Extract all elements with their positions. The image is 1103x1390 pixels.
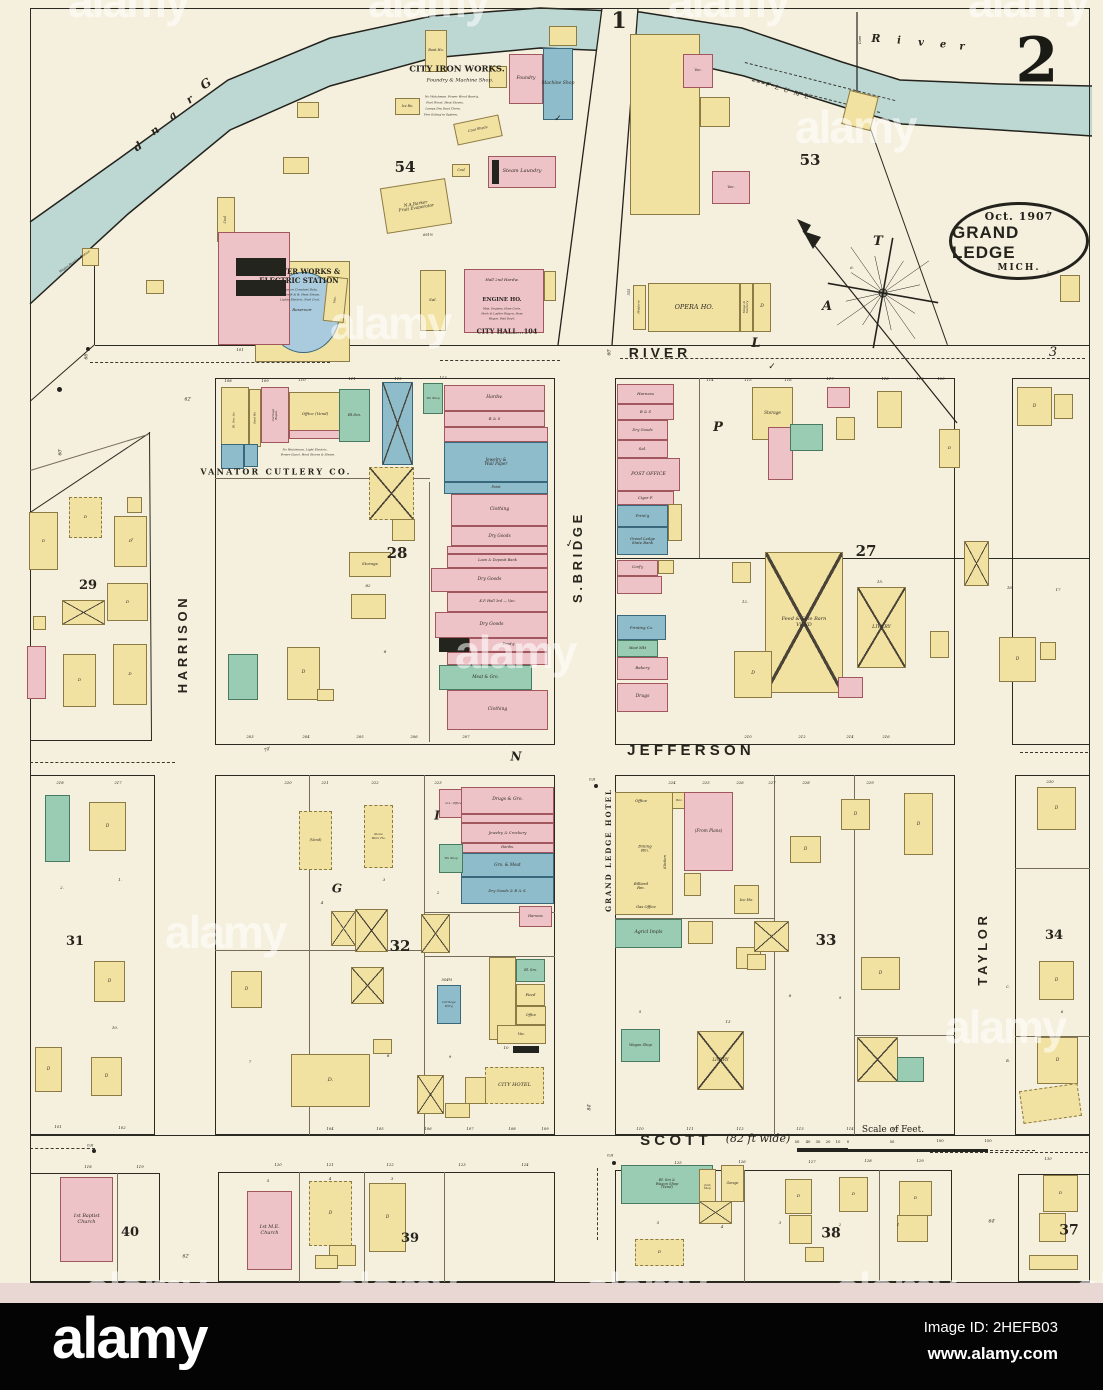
map-label: Fire Exting'rs System. [424, 113, 458, 116]
building [315, 1255, 338, 1269]
building-label: D [84, 515, 87, 519]
building-label: Foundry [517, 77, 536, 82]
map-label: 2 [839, 1223, 842, 1227]
building [617, 576, 662, 594]
sanborn-map-sheet: Boat Ho.Coal ShedsFoundryMachine ShopSte… [0, 0, 1103, 1390]
building-vac: Vac. [683, 54, 713, 88]
map-label: Hook & Ladder Wagon, Hose [481, 312, 522, 315]
building-label: D [105, 1074, 108, 1078]
building-label: Clothing [490, 508, 510, 513]
building-d: D [1037, 1037, 1078, 1084]
building-label: Jewelry & Wall Paper [485, 458, 508, 467]
building-label: Meat Mkt [629, 647, 646, 651]
map-label: Dining Rm. [638, 845, 651, 854]
block-number-32: 32 [390, 938, 411, 954]
building-label: 1st M.E. Church [259, 1225, 279, 1235]
building-dry-goods: Dry Goods [451, 526, 548, 546]
map-label: e [940, 41, 946, 52]
block-number-27: 27 [856, 543, 877, 559]
building-print-g: Print'g [617, 505, 668, 527]
parcel-line [1015, 868, 1090, 869]
building-label: Meat & Gro. [472, 675, 498, 679]
building-label: Carriage Pnt'g [442, 1001, 455, 1007]
map-label: 228 [802, 781, 809, 785]
map-label: 17 [1055, 588, 1060, 592]
building-1st-baptist-church: 1st Baptist Church [60, 1177, 113, 1262]
building-d: D [287, 647, 320, 700]
map-label: 62' [185, 399, 192, 404]
block-number-38: 38 [821, 1226, 840, 1241]
map-label: 203 [246, 735, 253, 739]
building-label: Bac. [676, 799, 683, 802]
building [1040, 642, 1056, 660]
map-label: O.H [589, 778, 595, 781]
building [382, 382, 413, 465]
street-label-river: RIVER [629, 345, 691, 360]
building [57, 387, 62, 392]
building-meat-gro: Meat & Gro. [439, 665, 532, 690]
pipe-or-flume-line [30, 1148, 95, 1149]
building-label: Print'g [636, 514, 650, 518]
map-label: 205 [356, 735, 363, 739]
map-title-state: MICH. [998, 263, 1041, 273]
map-label: 12. [742, 600, 748, 604]
map-label: 7 [249, 1060, 252, 1064]
building-dry-goods: Dry Goods [617, 420, 668, 440]
map-label: Hall 2nd Hardw. [485, 278, 518, 282]
building-label: D [329, 1211, 332, 1215]
pipe-or-flume-line [1020, 752, 1088, 753]
map-label: Bl. Sm. &c [232, 412, 235, 428]
building [754, 921, 789, 952]
parcel-line [744, 1170, 745, 1282]
map-label: 115 [744, 378, 751, 382]
map-label: 121 [326, 1163, 333, 1167]
building-label: 1st Baptist Church [73, 1214, 99, 1224]
map-label: I [434, 810, 440, 823]
building-label: Office (Vend) [302, 412, 328, 416]
building-label: Office [526, 1014, 537, 1018]
parcel-line [30, 1135, 1090, 1136]
map-label: 224 [668, 781, 675, 785]
map-label: 124 [521, 1163, 528, 1167]
building [513, 1046, 539, 1053]
map-label: B. [1006, 1060, 1010, 1064]
building-d: D [1017, 387, 1052, 426]
alamy-url[interactable]: www.alamy.com [924, 1344, 1058, 1364]
building-label: OPERA HO. [675, 304, 714, 311]
building-d: D [89, 802, 126, 851]
building-label: D [386, 1215, 389, 1219]
map-label: Fuel Wood. Heat Stoves. [426, 101, 463, 104]
map-label: 101 [236, 348, 243, 352]
building-agricl-impls: Agricl Impls [615, 919, 682, 948]
building [492, 160, 499, 184]
building-feed-sale-barn-vend: Feed & Sale Barn VEND [765, 552, 843, 693]
parcel-line [615, 558, 1090, 559]
map-label: Seed Ho [253, 412, 256, 424]
map-label: 218 [56, 781, 63, 785]
image-id: Image ID: 2HEFB03 [924, 1319, 1058, 1336]
building-vac: Vac. [712, 171, 750, 204]
building-label: LIVERY [872, 625, 891, 630]
building [373, 1039, 392, 1054]
map-label: 110 [298, 378, 305, 382]
block-number-53: 53 [800, 152, 821, 168]
street-label-s-bridge: S.BRIDGE [571, 511, 585, 603]
building-label: Grand Ledge State Bank [630, 537, 655, 545]
map-label: i [897, 37, 901, 48]
block-number-39: 39 [401, 1232, 419, 1246]
map-label: 4 [721, 1225, 724, 1229]
map-label: 108 [224, 379, 231, 383]
building [33, 616, 46, 630]
building-label: D [302, 671, 306, 676]
building-vac: Vac. [497, 1025, 546, 1044]
map-label: 216 [882, 735, 889, 739]
map-label: 122 [386, 1163, 393, 1167]
map-label: 2. [60, 886, 64, 890]
map-label: 225 [702, 781, 709, 785]
building-label: Vac. [518, 1033, 525, 1037]
street-label-scott: SCOTT [640, 1133, 712, 1149]
building-d: D [69, 497, 102, 538]
map-label: 206 [410, 735, 417, 739]
map-label: 1. [118, 878, 122, 882]
building-label: Harness [637, 392, 654, 396]
pipe-or-flume-line [930, 1152, 1088, 1153]
building-label: Print'g [502, 643, 514, 647]
map-label: 16. [1007, 586, 1013, 590]
building [369, 467, 414, 520]
building-label: Dry Goods [488, 534, 510, 538]
map-label: 125 [674, 1161, 681, 1165]
building-label: D [1059, 1191, 1062, 1195]
building-d: D [35, 1047, 62, 1092]
map-label: CITY HALL...104 [477, 328, 538, 335]
building-label: D [917, 822, 920, 826]
scale-bar [797, 1148, 848, 1152]
building-d: D [1043, 1175, 1078, 1212]
building-print-g: Print'g [469, 638, 548, 652]
building [351, 594, 386, 619]
building-opera-ho: OPERA HO. [648, 283, 740, 332]
map-label: N [511, 751, 522, 764]
pipe-or-flume-line [440, 360, 560, 361]
building-b-s: B & S [444, 411, 545, 427]
building-livery: LIVERY [697, 1031, 744, 1090]
building-bakery: Bakery [617, 657, 668, 680]
map-label: Carriage Repos. [272, 409, 278, 422]
building-drugs-gro: Drugs & Gro. [461, 787, 554, 814]
map-label: 120 [274, 1163, 281, 1167]
parcel-line [774, 775, 775, 1135]
building-label: CITY HOTEL [498, 1083, 531, 1088]
building [289, 430, 341, 439]
map-label: 130 [1044, 1157, 1051, 1161]
building-bl-sm: Bl. Sm. [516, 959, 545, 982]
building [897, 1215, 928, 1242]
building [1054, 394, 1073, 419]
map-label: 691½ [423, 234, 433, 238]
building-label: D [879, 971, 882, 975]
map-label: 66' [86, 353, 91, 360]
building-bl-sm: Bl.Sm. [339, 389, 370, 442]
scott-width-note: (82 ft wide) [726, 1133, 791, 1145]
building-label: Tin Shop [444, 857, 458, 860]
map-label: 8 [384, 650, 387, 654]
map-label: 126 [738, 1160, 745, 1164]
building-livery: LIVERY [857, 587, 906, 668]
map-title-city: GRAND LEDGE [952, 223, 1086, 263]
building [897, 1057, 924, 1082]
building [447, 652, 548, 665]
building-label: Hardw. [501, 846, 514, 850]
building-d: D [113, 644, 147, 705]
building-d: D [1037, 787, 1076, 830]
building-storage: Storage [349, 552, 391, 577]
building-label: Drugs & Gro. [492, 798, 523, 803]
building [805, 1247, 824, 1262]
building-label: Tin Shop [426, 397, 440, 400]
building-label: Feed & Sale Barn VEND [782, 617, 827, 628]
building-hardw: Hardw. [444, 385, 545, 411]
map-label: No Watchman. Power Wood Burn'g. [425, 95, 479, 98]
building-d: D [94, 961, 125, 1002]
building-clothing: Clothing [447, 690, 548, 730]
map-label: VANATOR CUTLERY CO. [200, 468, 351, 477]
map-label: 3 [779, 1221, 782, 1225]
map-label: O.H [87, 1144, 93, 1147]
building-label: Conf'y [632, 566, 643, 570]
building-garage: Garage [721, 1165, 744, 1202]
building-label: Ice Ho. [402, 105, 414, 108]
building [444, 427, 548, 442]
map-label: No Watchman. Light Electric. [282, 448, 327, 451]
building-label: G.L. Office [445, 802, 461, 805]
building-label: D [1056, 1058, 1059, 1062]
building [127, 497, 142, 513]
building-wagon-shop: Wagon Shop [621, 1029, 660, 1062]
map-label: 104 [326, 1127, 333, 1131]
building-label: D [914, 1196, 917, 1200]
building-feed: Feed [516, 984, 545, 1006]
map-label: 214 [846, 735, 853, 739]
building-d: D [1039, 961, 1074, 1000]
map-label: Dam [859, 36, 863, 44]
building-dry-goods: Dry Goods [431, 568, 548, 592]
building-label: Bl.Sm. [348, 413, 361, 417]
building-sal: Sal. [420, 270, 446, 331]
building-label: Vac. [333, 296, 337, 303]
building-paint: Paint [444, 482, 548, 494]
building-label: Machine Shop [542, 82, 575, 87]
building-d: D [839, 1177, 868, 1212]
building-1st-m-e-church: 1st M.E. Church [247, 1191, 292, 1270]
building-label: Junk Shop [704, 1184, 711, 1190]
building-label: D [854, 812, 857, 816]
map-label: 9 [839, 996, 842, 1000]
building-label: (From Plans) [695, 829, 723, 833]
parcel-line [30, 740, 152, 741]
map-label: 40 [806, 1140, 811, 1144]
map-label: v [918, 39, 924, 50]
block-outline [1012, 378, 1090, 745]
building-label: LIVERY [712, 1058, 728, 1062]
map-label: 119 [136, 1165, 143, 1169]
building-label: D [1033, 404, 1036, 408]
map-label: 7 [131, 538, 134, 542]
building-label: D [760, 305, 764, 310]
building-d: D [29, 512, 58, 570]
building-d: D [635, 1239, 684, 1266]
building-label: D [804, 847, 807, 851]
building-machine-shop: Machine Shop [543, 48, 573, 120]
map-label: O.H [607, 1154, 613, 1157]
building-label: D. [328, 1078, 333, 1083]
building-label: Drugs [636, 695, 650, 700]
block-number-37: 37 [1059, 1223, 1078, 1238]
building-label: D [106, 824, 109, 828]
building [964, 541, 989, 586]
building [549, 26, 577, 46]
map-label: 114 [846, 1127, 853, 1131]
building-d: D [734, 651, 772, 698]
building-label: Loan & Deposit Bank [478, 559, 517, 563]
building-label: Storage [362, 562, 378, 566]
map-label: Man on Constant Duty. [283, 288, 318, 291]
map-label: 111 [348, 377, 355, 381]
map-label: Wagon. Paid Dep't. [489, 317, 516, 320]
map-label: Foundry & Machine Shop. [427, 78, 494, 83]
building-label: B & S [489, 417, 501, 421]
building-label: Gro. & Meat [494, 863, 520, 867]
building [92, 1149, 96, 1153]
map-label: 10. [112, 1026, 118, 1030]
building [930, 631, 949, 658]
block-number-40: 40 [121, 1226, 139, 1240]
building [789, 1215, 812, 1244]
map-label: Power Gasol. Heat Stoves & Steam. [281, 453, 335, 456]
building-label: Bakery [635, 666, 649, 670]
building [668, 504, 682, 541]
building [244, 444, 258, 467]
adjacent-sheet-1: 1 [611, 10, 626, 34]
building-label: Boat Ho. [428, 49, 444, 53]
building [732, 562, 751, 583]
building-label: D [126, 600, 129, 604]
street-label-taylor: TAYLOR [976, 912, 990, 985]
map-label: 113 [796, 1127, 803, 1131]
map-label: 112 [736, 1127, 743, 1131]
map-label: 62' [183, 1256, 190, 1261]
map-label: Office [635, 799, 647, 803]
building-d: D [904, 793, 933, 855]
parcel-line [879, 1170, 880, 1282]
building [1029, 1255, 1078, 1270]
building-carriage-pnt-g: Carriage Pnt'g [437, 985, 461, 1024]
scan-edge-band [0, 1283, 1103, 1303]
building-d: D [753, 283, 771, 332]
map-label: 212 [798, 735, 805, 739]
map-label: 102 [118, 1126, 125, 1130]
map-label: 50 [795, 1140, 800, 1144]
building-tin-shop: Tin Shop [423, 383, 443, 414]
building [857, 1037, 898, 1082]
building [228, 654, 258, 700]
building-label: D [108, 979, 111, 983]
building [355, 909, 388, 952]
map-label: ELECTRIC STATION [259, 277, 338, 285]
building-label: (Vend) [310, 839, 322, 843]
map-label: 230 [1046, 780, 1053, 784]
building-label: Sal. [429, 298, 437, 302]
building-office: Office [516, 1006, 546, 1025]
building-jewelry-wall-paper: Jewelry & Wall Paper [444, 442, 548, 482]
building-label: Hardw. [486, 396, 502, 401]
map-label: 20 [826, 1140, 831, 1144]
map-label: ✓ [554, 115, 562, 125]
building-label: D [1055, 806, 1058, 810]
building-d: D. [291, 1054, 370, 1107]
building-ice-ho: Ice Ho. [734, 885, 759, 914]
map-label: 5 [267, 1179, 270, 1183]
building-label: D [658, 1250, 661, 1254]
map-label: r [959, 43, 964, 54]
map-label: 113 [439, 376, 446, 380]
map-label: 223 [434, 781, 441, 785]
building-label: D [245, 987, 248, 991]
building [417, 1075, 444, 1114]
building-k-p-hall-3rd-vac: K.P. Hall 3rd — Vac. [447, 592, 548, 612]
building-dry-goods: Dry Goods [435, 612, 548, 638]
street-label-harrison: HARRISON [176, 595, 190, 693]
building-d: D [999, 637, 1036, 682]
map-label: 106 [424, 1127, 431, 1131]
block-number-28: 28 [387, 545, 408, 561]
map-label: 5 [657, 1221, 660, 1225]
building [421, 914, 450, 953]
map-label: 207 [462, 735, 469, 739]
building-label: D [852, 1192, 855, 1196]
building-vend: (Vend) [299, 811, 332, 870]
building [684, 873, 701, 896]
map-label: 4 [329, 1177, 332, 1181]
building-label: Coal [457, 169, 464, 172]
parcel-line [364, 1172, 365, 1282]
building-label: POST OFFICE [631, 472, 666, 477]
map-label: 3 [383, 878, 386, 882]
map-label: P [713, 421, 723, 435]
parcel-line [855, 1035, 955, 1036]
map-label: C. [1006, 986, 1010, 990]
building-label: Vac. [727, 186, 734, 190]
map-label: 3 [391, 1177, 394, 1181]
map-label: Gas Office [636, 905, 656, 909]
map-label: 150 [984, 1139, 991, 1143]
map-label: 115 [891, 1127, 898, 1131]
building-label: Jewelry & Crockery [489, 831, 527, 835]
building [439, 638, 469, 652]
building [317, 689, 334, 701]
building [86, 347, 90, 351]
building-foundry: Foundry [509, 54, 543, 104]
map-label: Platform [637, 300, 640, 313]
building [838, 677, 863, 698]
building-meat-mkt: Meat Mkt [617, 640, 658, 657]
building-label: N.A.Barker Fruit Evaporator [398, 199, 435, 213]
alamy-footer-bar: alamy Image ID: 2HEFB03 www.alamy.com [0, 1303, 1103, 1390]
